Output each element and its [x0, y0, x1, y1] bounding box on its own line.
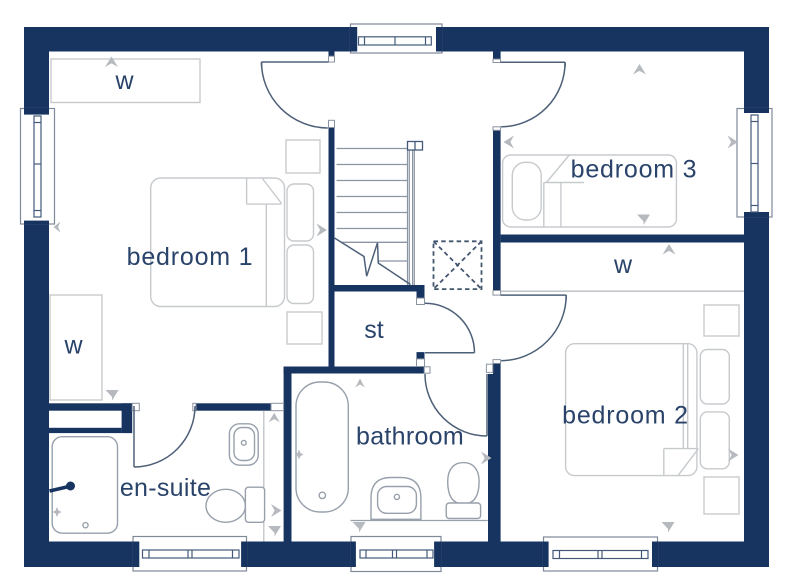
svg-text:w: w	[63, 332, 83, 360]
svg-text:st: st	[364, 316, 384, 344]
svg-text:bedroom 2: bedroom 2	[562, 402, 689, 430]
svg-text:en-suite: en-suite	[120, 474, 211, 502]
svg-text:bedroom 3: bedroom 3	[571, 156, 698, 184]
svg-text:w: w	[114, 67, 134, 95]
svg-text:bedroom 1: bedroom 1	[127, 243, 254, 271]
svg-text:bathroom: bathroom	[356, 423, 464, 451]
svg-text:w: w	[613, 251, 633, 279]
